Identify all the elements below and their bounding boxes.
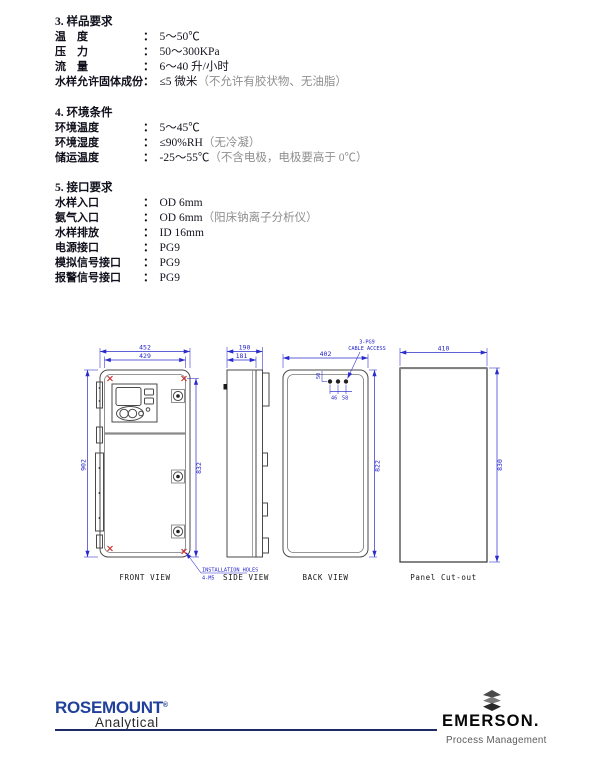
spec-row-pressure: 压 力：50～300KPa [55, 45, 347, 60]
registered-mark: ® [163, 702, 168, 709]
spec-colon: ： [143, 272, 155, 284]
rosemount-analytical-label: Analytical [95, 716, 168, 730]
spec-label: 水样排放 [55, 226, 143, 241]
spec-row-temperature: 温 度：5～50℃ [55, 30, 347, 45]
back-width-dim: 402 [320, 350, 332, 358]
section-heading: 5. 接口要求 [55, 181, 318, 196]
cable-access-leader-line1: 3-PG9 [359, 340, 375, 346]
display-screen [116, 388, 141, 406]
front-latch-screws [172, 390, 185, 539]
back-height-dim: 822 [374, 460, 382, 472]
spec-row-ammonia-inlet: 氨气入口：OD 6mm（阳床钠离子分析仪） [55, 211, 318, 226]
spec-label: 电源接口 [55, 241, 143, 256]
front-inner-width-dim: 429 [139, 352, 151, 360]
spec-label: 氨气入口 [55, 211, 143, 226]
rosemount-logo: ROSEMOUNT® Analytical [55, 698, 168, 730]
dimension-drawing-svg: 452 429 902 832 INSTALLATION HOLES 4-M5 … [0, 335, 602, 625]
spec-row-ambient-temp: 环境温度：5～45℃ [55, 121, 367, 136]
spec-colon: ： [143, 137, 155, 149]
panel-cutout-label: Panel Cut-out [410, 573, 477, 582]
spec-value: 5～45℃ [160, 122, 200, 134]
spec-value: 5～50℃ [160, 31, 200, 43]
front-height-right-dim: 832 [195, 462, 203, 474]
spec-colon: ： [143, 257, 155, 269]
spec-note: （无冷凝） [203, 137, 261, 149]
mounting-bracket [263, 373, 270, 406]
hole-gap1-dim: 46 [331, 396, 337, 402]
section-heading: 4. 环境条件 [55, 106, 367, 121]
hole-offset-dim: 50 [316, 373, 322, 379]
spec-note: （不含电极，电极要高于 0℃） [209, 152, 367, 164]
emerson-ribbon-icon [480, 690, 504, 711]
spec-colon: ： [143, 61, 155, 73]
side-marker [224, 384, 228, 390]
spec-row-humidity: 环境湿度：≤90%RH（无冷凝） [55, 136, 367, 151]
spec-note: （不允许有胶状物、无油脂） [197, 76, 347, 88]
side-view: 190 181 SIDE VIEW [223, 344, 269, 583]
spec-value: PG9 [160, 242, 180, 254]
spec-label: 报警信号接口 [55, 271, 143, 286]
spec-label: 环境温度 [55, 121, 143, 136]
spec-value: PG9 [160, 272, 180, 284]
rosemount-wordmark: ROSEMOUNT® [55, 698, 168, 716]
spec-label: 水样入口 [55, 196, 143, 211]
spec-label: 水样允许固体成份 [55, 75, 143, 90]
spec-colon: ： [143, 212, 155, 224]
cable-access-holes [328, 379, 348, 383]
spec-row-power: 电源接口：PG9 [55, 241, 318, 256]
front-view-label: FRONT VIEW [119, 573, 170, 582]
installation-holes-count-text: 4-M5 [202, 576, 215, 582]
spec-value: ≤5 微米 [160, 76, 198, 88]
side-depth-inner-dim: 181 [236, 352, 248, 360]
spec-value: 50～300KPa [160, 46, 220, 58]
spec-value: OD 6mm [160, 197, 203, 209]
side-depth-outer-dim: 190 [239, 344, 251, 352]
spec-row-analog-signal: 模拟信号接口：PG9 [55, 256, 318, 271]
spec-row-sample-inlet: 水样入口：OD 6mm [55, 196, 318, 211]
spec-label: 环境湿度 [55, 136, 143, 151]
process-management-label: Process Management [446, 735, 547, 746]
spec-colon: ： [143, 122, 155, 134]
spec-colon: ： [143, 46, 155, 58]
spec-colon: ： [143, 227, 155, 239]
cutout-width-dim: 410 [438, 345, 450, 353]
side-view-label: SIDE VIEW [223, 573, 269, 582]
front-view: 452 429 902 832 INSTALLATION HOLES 4-M5 … [80, 344, 259, 583]
spec-label: 模拟信号接口 [55, 256, 143, 271]
back-view-label: BACK VIEW [302, 573, 348, 582]
cutout-height-dim: 830 [496, 459, 504, 471]
cable-access-leader-line2: CABLE ACCESS [348, 346, 385, 352]
spec-note: （阳床钠离子分析仪） [203, 212, 318, 224]
front-height-left-dim: 902 [80, 459, 88, 471]
emerson-wordmark: EMERSON. [442, 712, 540, 731]
section-environment: 4. 环境条件 环境温度：5～45℃ 环境湿度：≤90%RH（无冷凝） 储运温度… [55, 106, 367, 166]
spec-label: 流 量 [55, 60, 143, 75]
spec-value: PG9 [160, 257, 180, 269]
spec-value: -25～55℃ [160, 152, 210, 164]
spec-value: OD 6mm [160, 212, 203, 224]
keypad [117, 407, 144, 421]
section-interfaces: 5. 接口要求 水样入口：OD 6mm 氨气入口：OD 6mm（阳床钠离子分析仪… [55, 181, 318, 286]
spec-row-solids: 水样允许固体成份：≤5 微米（不允许有胶状物、无油脂） [55, 75, 347, 90]
section-sample-requirements: 3. 样品要求 温 度：5～50℃ 压 力：50～300KPa 流 量：6～40… [55, 15, 347, 90]
spec-row-storage-temp: 储运温度：-25～55℃（不含电极，电极要高于 0℃） [55, 151, 367, 166]
spec-label: 压 力 [55, 45, 143, 60]
panel-cutout-view: 410 830 Panel Cut-out [400, 345, 504, 583]
spec-row-alarm-signal: 报警信号接口：PG9 [55, 271, 318, 286]
spec-colon: ： [143, 31, 155, 43]
spec-row-flow: 流 量：6～40 升/小时 [55, 60, 347, 75]
spec-value: ID 16mm [160, 227, 204, 239]
spec-label: 储运温度 [55, 151, 143, 166]
spec-label: 温 度 [55, 30, 143, 45]
footer-rule [55, 729, 437, 731]
hole-gap2-dim: 58 [342, 396, 348, 402]
spec-value: ≤90%RH [160, 137, 203, 149]
back-view: 50 46 58 3-PG9 CABLE ACCESS 402 822 BACK… [283, 340, 386, 583]
front-outer-width-dim: 452 [139, 344, 151, 352]
spec-colon: ： [143, 197, 155, 209]
spec-value: 6～40 升/小时 [160, 61, 229, 73]
section-heading: 3. 样品要求 [55, 15, 347, 30]
spec-colon: ： [143, 152, 155, 164]
spec-colon: ： [143, 76, 155, 88]
spec-colon: ： [143, 242, 155, 254]
front-control-panel [112, 384, 157, 422]
technical-drawing: 452 429 902 832 INSTALLATION HOLES 4-M5 … [0, 335, 602, 625]
datasheet-page: { "doc": { "colon": "：", "sections": [ {… [0, 0, 602, 757]
spec-row-drain: 水样排放：ID 16mm [55, 226, 318, 241]
